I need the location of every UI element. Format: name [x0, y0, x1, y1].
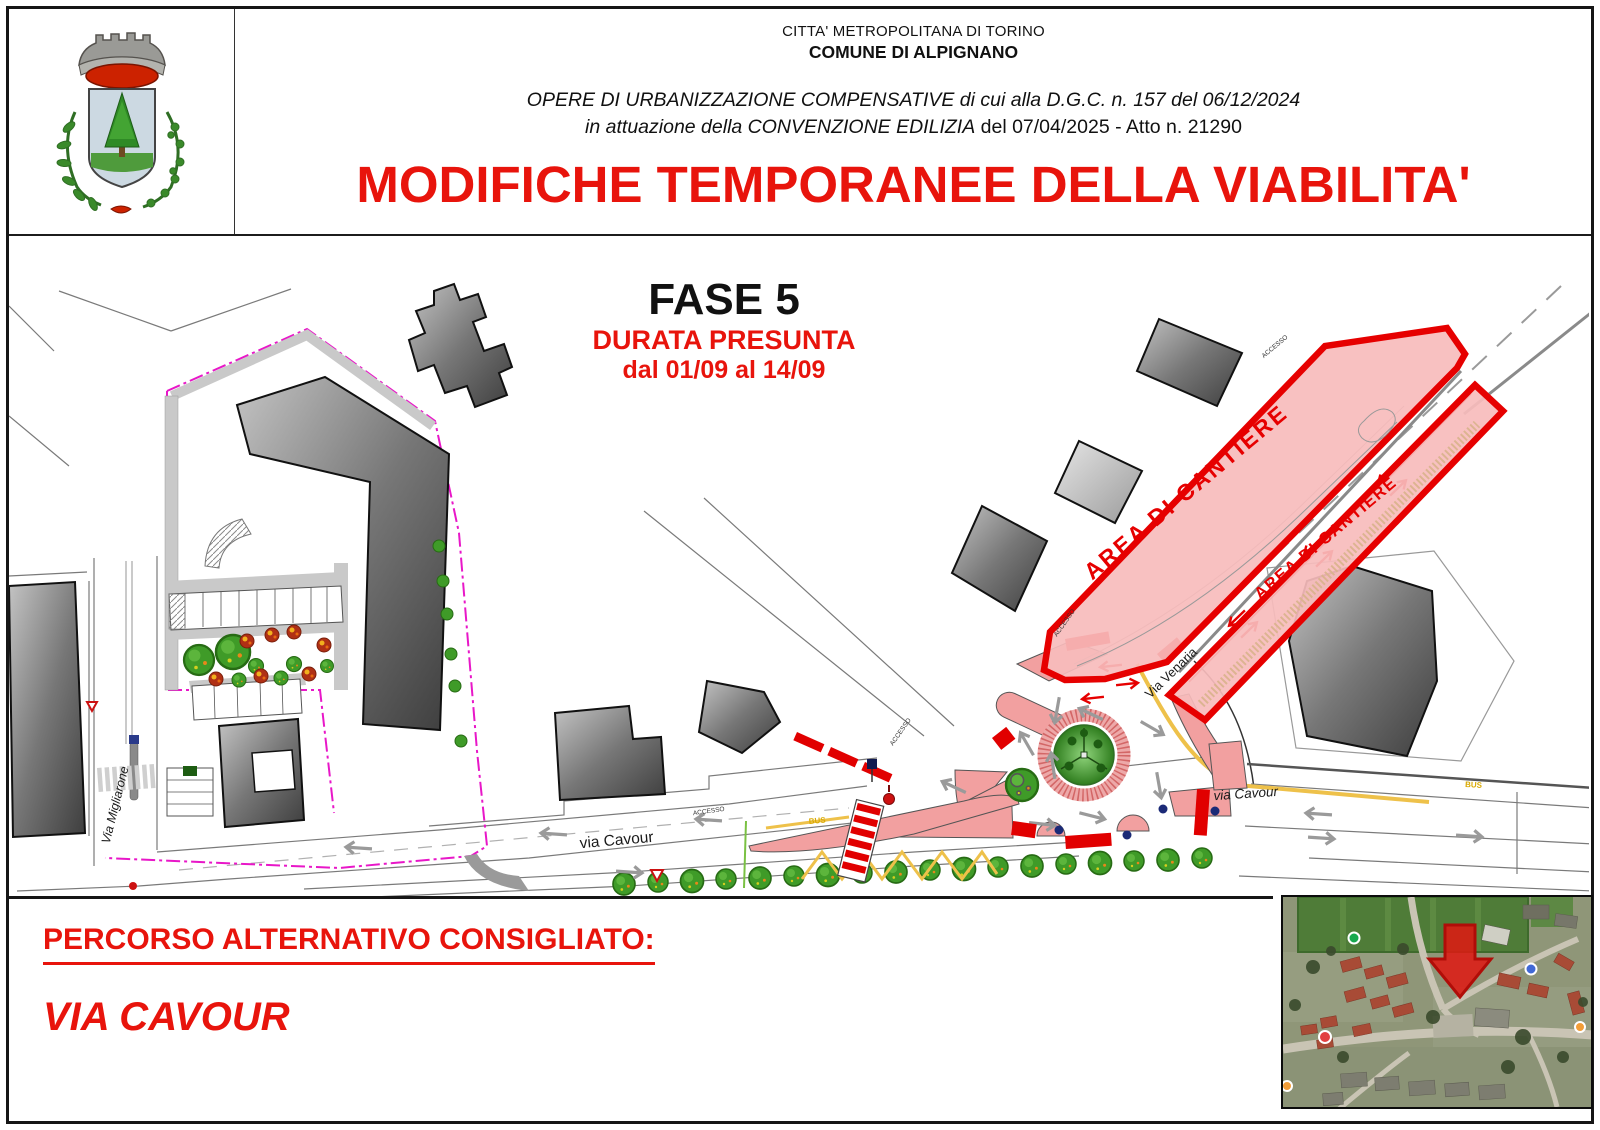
- label-accesso-4: ACCESSO: [693, 806, 725, 817]
- coat-of-arms-icon: [51, 27, 191, 222]
- satellite-image: [1283, 897, 1592, 1107]
- building-mid-L: [555, 706, 665, 800]
- phase-name: FASE 5: [529, 277, 919, 323]
- label-bus-2: BUS: [1465, 780, 1483, 790]
- building-ne-3: [952, 506, 1047, 611]
- convention-italic: in attuazione della CONVENZIONE EDILIZIA: [585, 116, 975, 138]
- building-far-left: [9, 582, 85, 837]
- label-accesso-2: ACCESSO: [1261, 334, 1290, 360]
- phase-duration-dates: dal 01/09 al 14/09: [529, 356, 919, 385]
- tree-row: [613, 848, 1212, 895]
- phase-duration-label: DURATA PRESUNTA: [529, 325, 919, 356]
- alt-route-label: PERCORSO ALTERNATIVO CONSIGLIATO:: [43, 923, 655, 965]
- header: CITTA' METROPOLITANA DI TORINO COMUNE DI…: [9, 9, 1591, 236]
- label-via-cavour-east: via Cavour: [1213, 784, 1279, 803]
- building-stepped: [409, 284, 512, 407]
- phase-block: FASE 5 DURATA PRESUNTA dal 01/09 al 14/0…: [529, 277, 919, 385]
- header-text: CITTA' METROPOLITANA DI TORINO COMUNE DI…: [236, 9, 1591, 234]
- label-via-migliarone: Via Migliarone: [99, 765, 132, 845]
- building-ne-2: [1055, 441, 1142, 523]
- shield-icon: [89, 89, 155, 187]
- satellite-inset: [1281, 895, 1593, 1109]
- notice-page: CITTA' METROPOLITANA DI TORINO COMUNE DI…: [6, 6, 1594, 1124]
- municipal-coat-of-arms: [9, 9, 235, 234]
- crown-icon: [79, 33, 165, 88]
- alt-route-value: VIA CAVOUR: [43, 995, 290, 1040]
- label-accesso-3: ACCESSO: [889, 717, 913, 747]
- convention-line: in attuazione della CONVENZIONE EDILIZIA…: [236, 116, 1591, 139]
- works-line: OPERE DI URBANIZZAZIONE COMPENSATIVE di …: [236, 89, 1591, 112]
- building-ne-1: [1137, 319, 1242, 406]
- municipality-line: COMUNE DI ALPIGNANO: [236, 42, 1591, 63]
- authority-line: CITTA' METROPOLITANA DI TORINO: [236, 23, 1591, 40]
- label-bus-1: BUS: [808, 815, 826, 825]
- convention-regular: del 07/04/2025 - Atto n. 21290: [981, 116, 1242, 138]
- roundabout: [1044, 715, 1124, 795]
- ribbon-icon: [111, 206, 131, 213]
- page-title: MODIFICHE TEMPORANEE DELLA VIABILITA': [236, 155, 1591, 214]
- building-pentagon: [699, 681, 780, 753]
